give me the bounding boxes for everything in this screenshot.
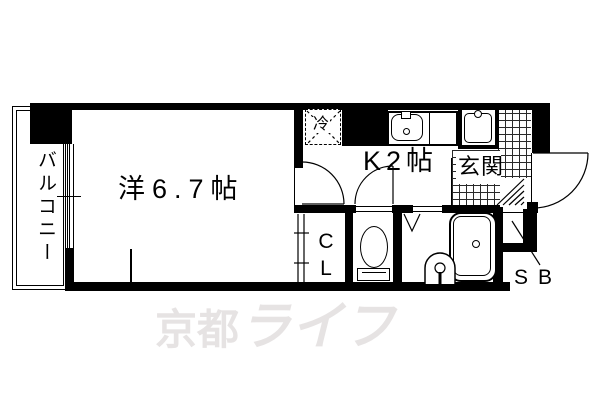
western-room-label: 洋6.7帖 <box>118 176 245 203</box>
washbasin-icon <box>425 253 455 288</box>
entrance-label: 玄関 <box>458 156 504 178</box>
closet-label: C L <box>313 228 339 282</box>
door-symbols-layer <box>0 0 600 400</box>
shoebox-label: SB <box>514 267 562 288</box>
entrance-door-arc <box>533 153 588 208</box>
closet-label-c: C <box>313 228 339 255</box>
balcony-label: バルコニー <box>31 150 55 288</box>
floorplan-canvas: 京都ライフ <box>0 0 600 400</box>
room-door-arc <box>302 162 344 204</box>
bath-folding-door-icon <box>404 214 420 231</box>
entrance-step-hatch <box>497 179 524 205</box>
closet-label-l: L <box>313 255 339 282</box>
kitchen-label: K2帖 <box>363 148 438 175</box>
refrigerator-label: 冷 <box>312 117 330 133</box>
shoebox-leader-line <box>512 221 540 265</box>
